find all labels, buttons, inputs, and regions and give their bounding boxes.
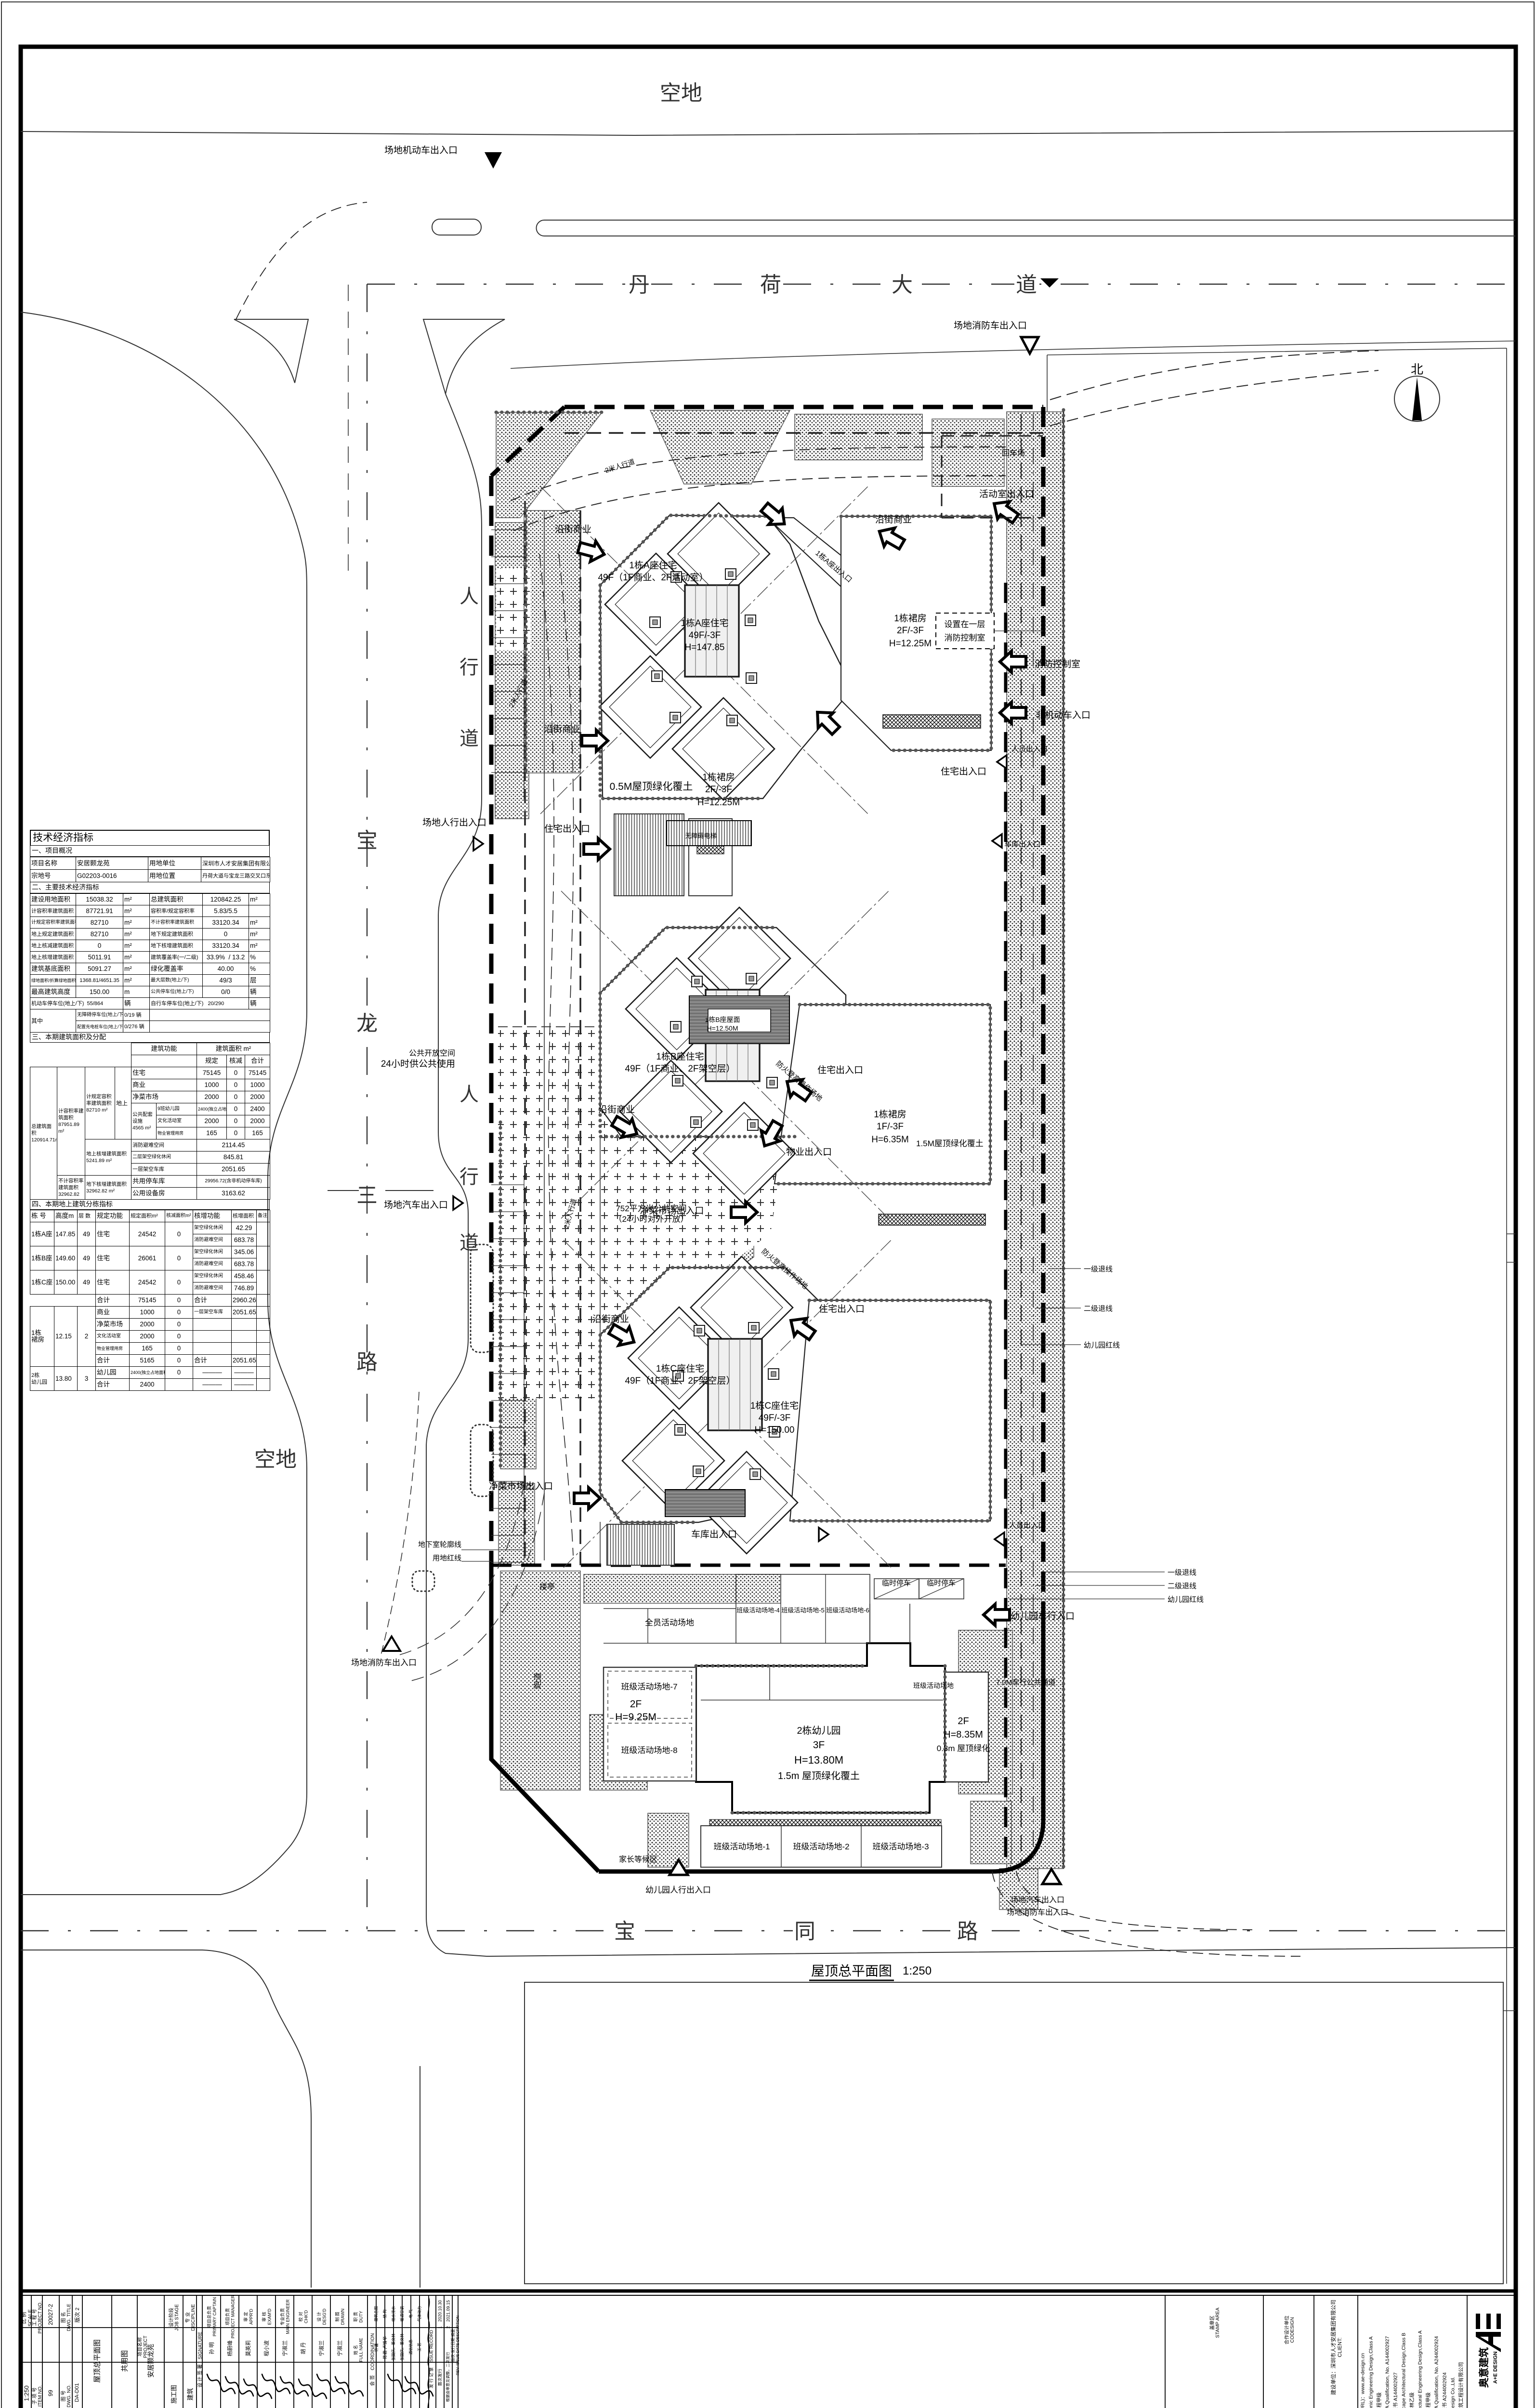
svg-text:A+E DESIGN: A+E DESIGN [1493,2351,1498,2383]
svg-text:奥意建筑: 奥意建筑 [1478,2347,1490,2388]
